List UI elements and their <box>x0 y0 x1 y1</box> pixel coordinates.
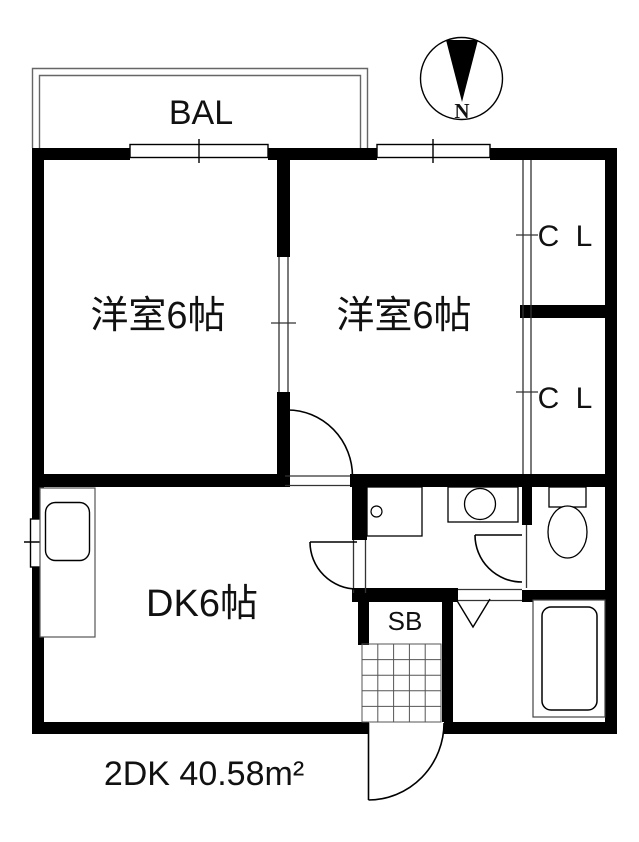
compass-north-label: N <box>454 99 469 123</box>
entrance-door-arc <box>369 723 445 800</box>
room2-label: 洋室6帖 <box>336 295 471 337</box>
floor-area-label: 2DK 40.58m² <box>104 755 304 793</box>
wall-segment <box>442 598 453 722</box>
toilet-bowl <box>548 506 587 558</box>
dining-kitchen-label: DK6帖 <box>146 583 258 625</box>
wall-segment <box>358 593 369 645</box>
fixtures <box>40 487 605 717</box>
walls <box>32 148 617 734</box>
tile-grid-outline <box>362 644 441 722</box>
wall-segment <box>605 148 617 734</box>
washer-drain-icon <box>371 506 382 517</box>
wall-segment <box>358 593 442 600</box>
toilet-tank <box>549 487 586 507</box>
room2-door-arc <box>288 410 353 477</box>
wall-segment <box>268 148 377 160</box>
balcony-label: BAL <box>169 94 233 132</box>
entrance-tile-grid <box>362 644 441 722</box>
closet-top-label: C L <box>538 220 597 253</box>
wall-segment <box>32 148 44 519</box>
wall-segment <box>277 392 290 487</box>
wall-segment <box>352 487 367 540</box>
wall-segment <box>32 474 285 487</box>
hall-door-v-mark <box>456 599 490 627</box>
wall-segment <box>490 148 617 160</box>
wall-segment <box>277 160 290 257</box>
wall-segment <box>444 722 617 734</box>
wall-segment <box>32 148 130 160</box>
wall-segment <box>350 474 605 487</box>
floor-plan-canvas: N <box>0 0 639 842</box>
compass: N <box>421 38 503 124</box>
closet-bottom-label: C L <box>538 382 597 415</box>
wall-segment <box>32 722 369 734</box>
bathtub <box>542 607 597 710</box>
shoe-box-label: SB <box>388 606 423 636</box>
room1-label: 洋室6帖 <box>90 295 225 337</box>
dk-door-arc <box>310 542 357 589</box>
floor-plan: N <box>0 0 639 842</box>
wall-segment <box>522 487 532 525</box>
wall-segment <box>520 305 617 318</box>
kitchen-sink <box>46 503 90 561</box>
washroom-door-arc <box>475 535 522 582</box>
wash-basin-bowl <box>465 489 496 520</box>
